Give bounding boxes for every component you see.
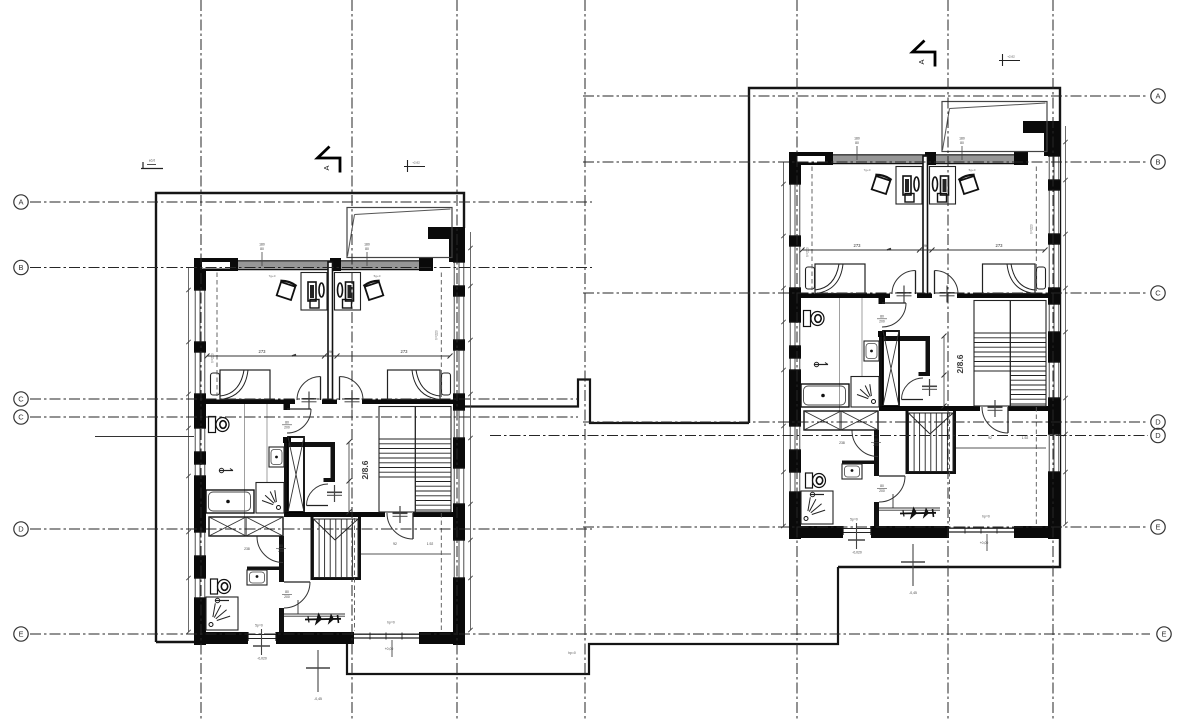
svg-text:+0,00: +0,00 [385, 647, 394, 651]
svg-text:180: 180 [364, 243, 370, 247]
svg-text:80: 80 [880, 484, 884, 488]
svg-text:273: 273 [401, 349, 409, 354]
svg-text:E: E [1155, 523, 1160, 532]
svg-text:80: 80 [880, 315, 884, 319]
svg-text:D: D [1155, 418, 1161, 427]
svg-text:E: E [1161, 630, 1166, 639]
svg-text:180: 180 [259, 243, 265, 247]
svg-text:+2,62: +2,62 [1007, 55, 1015, 59]
svg-text:-0,45: -0,45 [909, 591, 917, 595]
svg-text:7g+0: 7g+0 [269, 274, 276, 278]
svg-text:-0,020: -0,020 [852, 551, 862, 555]
svg-text:±0,0: ±0,0 [149, 159, 155, 163]
svg-text:A: A [18, 198, 23, 207]
svg-text:h=220: h=220 [1030, 224, 1034, 234]
svg-text:1.92: 1.92 [1022, 436, 1029, 440]
svg-text:A: A [322, 165, 331, 170]
svg-text:+2,62: +2,62 [412, 161, 420, 165]
svg-text:80: 80 [874, 438, 878, 442]
svg-text:273: 273 [854, 243, 862, 248]
svg-text:273: 273 [996, 243, 1004, 248]
svg-text:h=220: h=220 [211, 353, 215, 363]
svg-text:B: B [18, 263, 23, 272]
svg-text:80: 80 [285, 590, 289, 594]
svg-text:A: A [917, 59, 926, 64]
svg-text:80: 80 [279, 544, 283, 548]
svg-text:hp=0: hp=0 [387, 621, 395, 625]
svg-text:5p=0: 5p=0 [255, 624, 263, 628]
svg-text:90: 90 [329, 350, 333, 354]
svg-text:E: E [18, 630, 23, 639]
svg-text:5g+0: 5g+0 [969, 168, 976, 172]
svg-text:90: 90 [924, 244, 928, 248]
svg-text:-0,45: -0,45 [314, 697, 322, 701]
svg-text:2/8.6: 2/8.6 [955, 354, 965, 373]
svg-text:-0,020: -0,020 [257, 657, 267, 661]
svg-text:A: A [1155, 92, 1160, 101]
svg-text:92: 92 [988, 436, 992, 440]
svg-text:238: 238 [839, 441, 845, 445]
svg-text:80: 80 [260, 247, 264, 251]
svg-text:h=220: h=220 [806, 247, 810, 257]
svg-text:5p=0: 5p=0 [850, 518, 858, 522]
svg-text:80: 80 [285, 421, 289, 425]
svg-text:200: 200 [879, 320, 885, 324]
svg-text:200: 200 [284, 595, 290, 599]
svg-text:C: C [1155, 289, 1161, 298]
svg-text:200: 200 [278, 549, 284, 553]
svg-text:180: 180 [959, 137, 965, 141]
svg-text:1.92: 1.92 [427, 542, 434, 546]
svg-text:7g+0: 7g+0 [864, 168, 871, 172]
svg-text:92: 92 [393, 542, 397, 546]
svg-text:D: D [1155, 431, 1161, 440]
svg-text:2/8.6: 2/8.6 [360, 460, 370, 479]
svg-text:200: 200 [284, 426, 290, 430]
svg-text:h=220: h=220 [435, 330, 439, 340]
svg-text:200: 200 [873, 443, 879, 447]
svg-text:hp=0: hp=0 [982, 515, 990, 519]
svg-text:80: 80 [365, 247, 369, 251]
svg-text:D: D [18, 525, 24, 534]
svg-text:80: 80 [960, 141, 964, 145]
svg-text:hp=0: hp=0 [568, 651, 576, 655]
svg-text:200: 200 [879, 489, 885, 493]
svg-text:B: B [1155, 158, 1160, 167]
svg-text:80: 80 [855, 141, 859, 145]
svg-text:273: 273 [259, 349, 267, 354]
svg-text:238: 238 [244, 547, 250, 551]
svg-text:+0,00: +0,00 [980, 541, 989, 545]
svg-text:C: C [18, 395, 24, 404]
svg-text:180: 180 [854, 137, 860, 141]
svg-text:5g+0: 5g+0 [374, 274, 381, 278]
svg-text:C: C [18, 413, 24, 422]
